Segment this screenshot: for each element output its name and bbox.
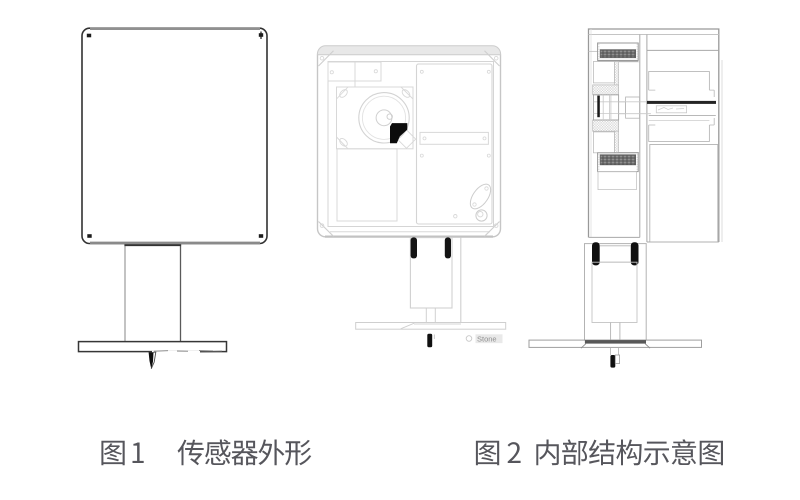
svg-text:Stone: Stone [477, 335, 497, 344]
